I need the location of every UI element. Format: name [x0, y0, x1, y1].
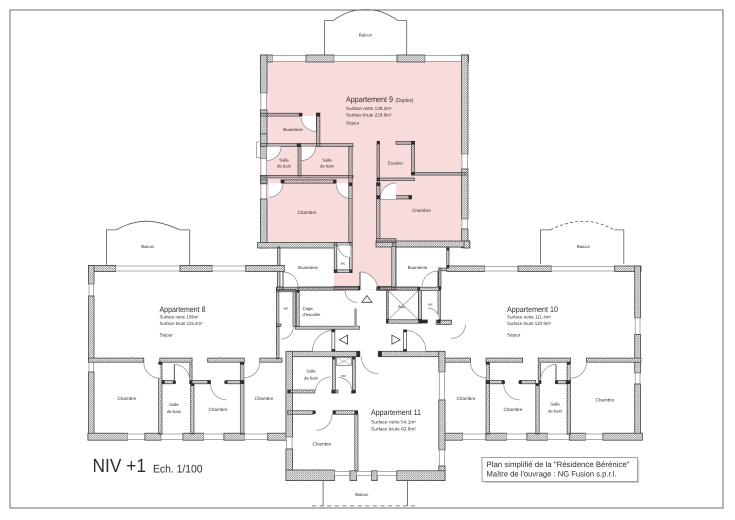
svg-text:(Duplex): (Duplex) [396, 98, 414, 104]
svg-text:d'escalier: d'escalier [303, 312, 322, 317]
svg-text:Séjour: Séjour [160, 333, 174, 338]
svg-text:Chambre: Chambre [596, 398, 615, 403]
svg-text:Séjour: Séjour [346, 121, 360, 126]
svg-text:Salle: Salle [279, 158, 289, 163]
svg-text:Surface nette 111.4m²: Surface nette 111.4m² [507, 315, 551, 320]
svg-text:Surface brute 63.6m²: Surface brute 63.6m² [371, 427, 416, 432]
svg-text:Appartement 10: Appartement 10 [507, 305, 558, 314]
svg-text:wc: wc [341, 374, 346, 378]
svg-text:Salle: Salle [306, 369, 316, 374]
svg-text:Buanderie: Buanderie [298, 265, 318, 270]
svg-text:wc: wc [341, 262, 346, 266]
svg-text:Asc.: Asc. [398, 304, 406, 309]
svg-text:Buanderie: Buanderie [408, 265, 428, 270]
svg-text:Chambre: Chambre [118, 396, 137, 401]
svg-text:Surface nette 54.1m²: Surface nette 54.1m² [371, 420, 416, 425]
svg-text:Balcon: Balcon [141, 244, 155, 249]
svg-text:Chambre: Chambre [412, 208, 431, 213]
svg-text:Balcon: Balcon [355, 492, 369, 497]
svg-text:Chambre: Chambre [255, 396, 274, 401]
svg-text:Surface brute 125.4m²: Surface brute 125.4m² [160, 321, 203, 326]
svg-text:Ech. 1/100: Ech. 1/100 [153, 464, 203, 476]
svg-text:Chambre: Chambre [504, 407, 523, 412]
svg-text:Salle: Salle [550, 402, 560, 407]
svg-text:de bain: de bain [320, 164, 335, 169]
svg-text:Chambre: Chambre [313, 441, 332, 446]
svg-text:Appartement 8: Appartement 8 [160, 305, 206, 314]
svg-text:Maître de l'ouvrage : NG Fusio: Maître de l'ouvrage : NG Fusion s.p.r.l. [487, 470, 617, 479]
svg-text:de bain: de bain [277, 164, 292, 169]
svg-text:wc: wc [428, 303, 433, 307]
svg-text:Salle: Salle [169, 402, 179, 407]
svg-text:Surface nette 109m²: Surface nette 109m² [160, 315, 199, 320]
svg-text:wc: wc [284, 307, 289, 311]
svg-text:Escalier: Escalier [388, 161, 404, 166]
svg-text:de bain: de bain [167, 409, 182, 414]
svg-text:de bain: de bain [548, 409, 563, 414]
svg-text:Plan simplifié de la "Résidenc: Plan simplifié de la "Résidence Bérénice… [487, 460, 630, 469]
svg-text:Balcon: Balcon [577, 244, 591, 249]
svg-text:de bain: de bain [304, 376, 319, 381]
svg-text:Salle: Salle [322, 158, 332, 163]
svg-text:Buanderie: Buanderie [283, 127, 303, 132]
svg-text:Balcon: Balcon [359, 33, 373, 38]
svg-text:Appartement 9: Appartement 9 [346, 95, 393, 104]
svg-text:Surface brute 219.9m²: Surface brute 219.9m² [346, 113, 392, 118]
svg-text:NIV +1: NIV +1 [93, 456, 147, 477]
svg-text:Surface nette 139.3m²: Surface nette 139.3m² [346, 106, 392, 111]
svg-text:Chambre: Chambre [298, 210, 317, 215]
svg-text:Surface brute 120.9m²: Surface brute 120.9m² [507, 321, 551, 326]
svg-text:Appartement 11: Appartement 11 [371, 408, 421, 417]
svg-text:Chambre: Chambre [457, 396, 476, 401]
svg-text:Séjour: Séjour [507, 333, 521, 338]
svg-text:Chambre: Chambre [209, 407, 228, 412]
svg-text:Cage: Cage [303, 306, 314, 311]
